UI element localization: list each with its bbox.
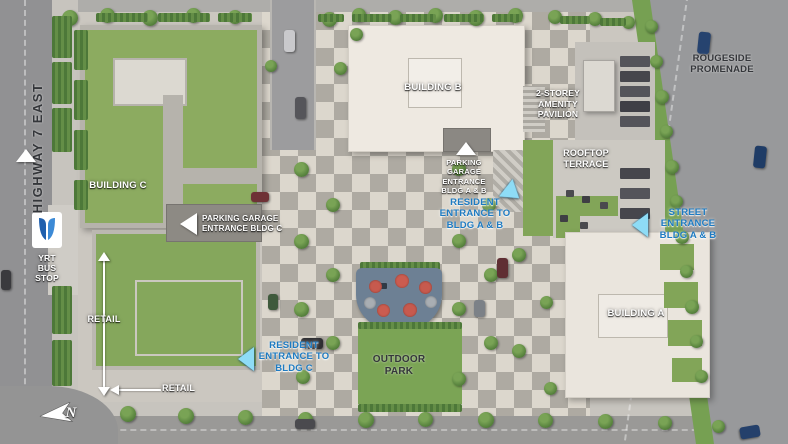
- retail-west-label: RETAIL: [81, 314, 127, 325]
- hedge: [74, 30, 88, 70]
- tree-icon: [334, 62, 347, 75]
- building-c-label: BUILDING C: [82, 180, 154, 191]
- tree-icon: [326, 198, 340, 212]
- highway-direction-arrow-icon: [16, 149, 36, 162]
- tree-icon: [598, 414, 613, 429]
- resident-c-label: RESIDENT ENTRANCE TO BLDG C: [252, 340, 336, 374]
- rooftop-terrace-label: ROOFTOP TERRACE: [548, 148, 624, 170]
- hedge: [600, 18, 626, 26]
- tree-icon: [484, 268, 498, 282]
- tree-icon: [452, 372, 466, 386]
- retail-south-arrow-icon: [110, 385, 119, 395]
- car: [474, 300, 485, 317]
- tree-icon: [685, 300, 699, 314]
- hedge: [158, 13, 210, 22]
- retail-south-arrow-line: [119, 389, 161, 391]
- rougeside-promenade-label: ROUGESIDE PROMENADE: [678, 53, 766, 76]
- site-furniture: [620, 116, 650, 127]
- yrt-bus-stop-label: YRT BUS STOP: [24, 254, 70, 283]
- playground-circle: [364, 297, 376, 309]
- south-lane-marking: [0, 429, 788, 431]
- building-c-roof-path-h: [183, 168, 262, 184]
- parking-ab-arrow-icon: [456, 142, 476, 155]
- parking-c-label: PARKING GARAGE ENTRANCE BLDG C: [202, 214, 294, 235]
- tree-icon: [478, 412, 494, 428]
- hedge: [318, 14, 344, 22]
- car: [295, 97, 306, 119]
- building-c-lawn-outline: [135, 280, 243, 356]
- tree-icon: [680, 265, 693, 278]
- tree-icon: [690, 335, 703, 348]
- parking-ab-label: PARKING GARAGE ENTRANCE BLDG A & B: [434, 158, 494, 196]
- tree-icon: [452, 302, 466, 316]
- site-furniture: [620, 188, 650, 199]
- tree-icon: [512, 344, 526, 358]
- car: [1, 270, 11, 290]
- tree-icon: [665, 160, 679, 174]
- hedge: [52, 286, 72, 334]
- tree-icon: [658, 416, 672, 430]
- tree-icon: [452, 234, 466, 248]
- site-furniture: [620, 168, 650, 179]
- site-furniture: [580, 222, 588, 229]
- tree-icon: [538, 413, 553, 428]
- parking-c-arrow-icon: [180, 213, 197, 235]
- car: [268, 294, 278, 310]
- tree-icon: [660, 125, 673, 138]
- playground-circle: [369, 280, 382, 293]
- building-a-label: BUILDING A: [598, 308, 674, 319]
- yrt-logo: [32, 212, 62, 248]
- hedge: [400, 14, 436, 22]
- hedge: [444, 14, 484, 22]
- car: [295, 419, 315, 429]
- hedge: [74, 80, 88, 120]
- hedge: [352, 14, 392, 22]
- tree-icon: [350, 28, 363, 41]
- site-furniture: [582, 196, 590, 203]
- retail-west-arrow-up-icon: [98, 252, 110, 261]
- hedge: [96, 13, 148, 22]
- tree-icon: [650, 55, 663, 68]
- amenity-pavilion-label: 2-STOREY AMENITY PAVILION: [518, 88, 598, 120]
- hedge: [358, 404, 462, 412]
- car: [753, 145, 767, 168]
- highway-lane-marking: [24, 0, 26, 444]
- tree-icon: [540, 296, 553, 309]
- playground-circle: [419, 281, 432, 294]
- playground-circle: [425, 296, 437, 308]
- tree-icon: [294, 302, 309, 317]
- hedge: [74, 130, 88, 170]
- site-furniture: [560, 215, 568, 222]
- tree-icon: [712, 420, 725, 433]
- tree-icon: [512, 248, 526, 262]
- tree-icon: [120, 406, 136, 422]
- tree-icon: [655, 90, 669, 104]
- tree-icon: [418, 412, 433, 427]
- site-plan: HIGHWAY 7 EAST YRT BUS STOP BUILDING C P…: [0, 0, 788, 444]
- tree-icon: [645, 20, 658, 33]
- tree-icon: [358, 412, 374, 428]
- building-b-label: BUILDING B: [396, 82, 470, 93]
- highway-7-label: HIGHWAY 7 EAST: [30, 83, 46, 214]
- car: [697, 31, 711, 54]
- playground-circle: [403, 303, 417, 317]
- park-hedge-top: [358, 322, 462, 329]
- hedge: [218, 13, 252, 22]
- tree-icon: [544, 382, 557, 395]
- hedge: [52, 16, 72, 58]
- hedge: [560, 16, 590, 24]
- tree-icon: [695, 370, 708, 383]
- playground-circle: [377, 304, 390, 317]
- north-driveway: [270, 0, 316, 150]
- site-furniture: [620, 101, 650, 112]
- car: [284, 30, 295, 52]
- street-ab-label: STREET ENTRANCE BLDG A & B: [650, 207, 726, 241]
- tree-icon: [238, 410, 253, 425]
- hedge: [52, 62, 72, 104]
- site-furniture: [620, 56, 650, 67]
- resident-ab-label: RESIDENT ENTRANCE TO BLDG A & B: [430, 197, 520, 231]
- outdoor-park-label: OUTDOOR PARK: [364, 354, 434, 378]
- retail-west-arrow-down-icon: [98, 387, 110, 396]
- tree-icon: [265, 60, 277, 72]
- hedge: [52, 340, 72, 386]
- tree-icon: [484, 336, 498, 350]
- north-label: N: [62, 404, 80, 422]
- hedge: [492, 14, 522, 22]
- car: [497, 258, 508, 278]
- car: [251, 192, 269, 202]
- tree-icon: [294, 234, 309, 249]
- site-furniture: [620, 71, 650, 82]
- site-furniture: [566, 190, 574, 197]
- site-furniture: [600, 202, 608, 209]
- street-ab-arrow-icon: [632, 213, 648, 237]
- tree-icon: [326, 268, 340, 282]
- site-furniture: [620, 86, 650, 97]
- retail-south-label: RETAIL: [162, 383, 208, 394]
- playground-circle: [395, 274, 409, 288]
- tree-icon: [178, 408, 194, 424]
- tree-icon: [294, 162, 309, 177]
- hedge: [52, 108, 72, 152]
